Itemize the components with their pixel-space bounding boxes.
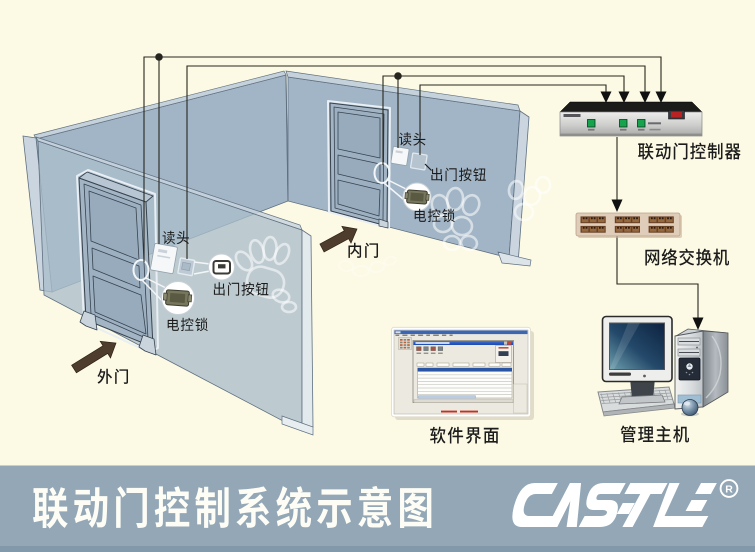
svg-text:R: R: [725, 484, 733, 496]
